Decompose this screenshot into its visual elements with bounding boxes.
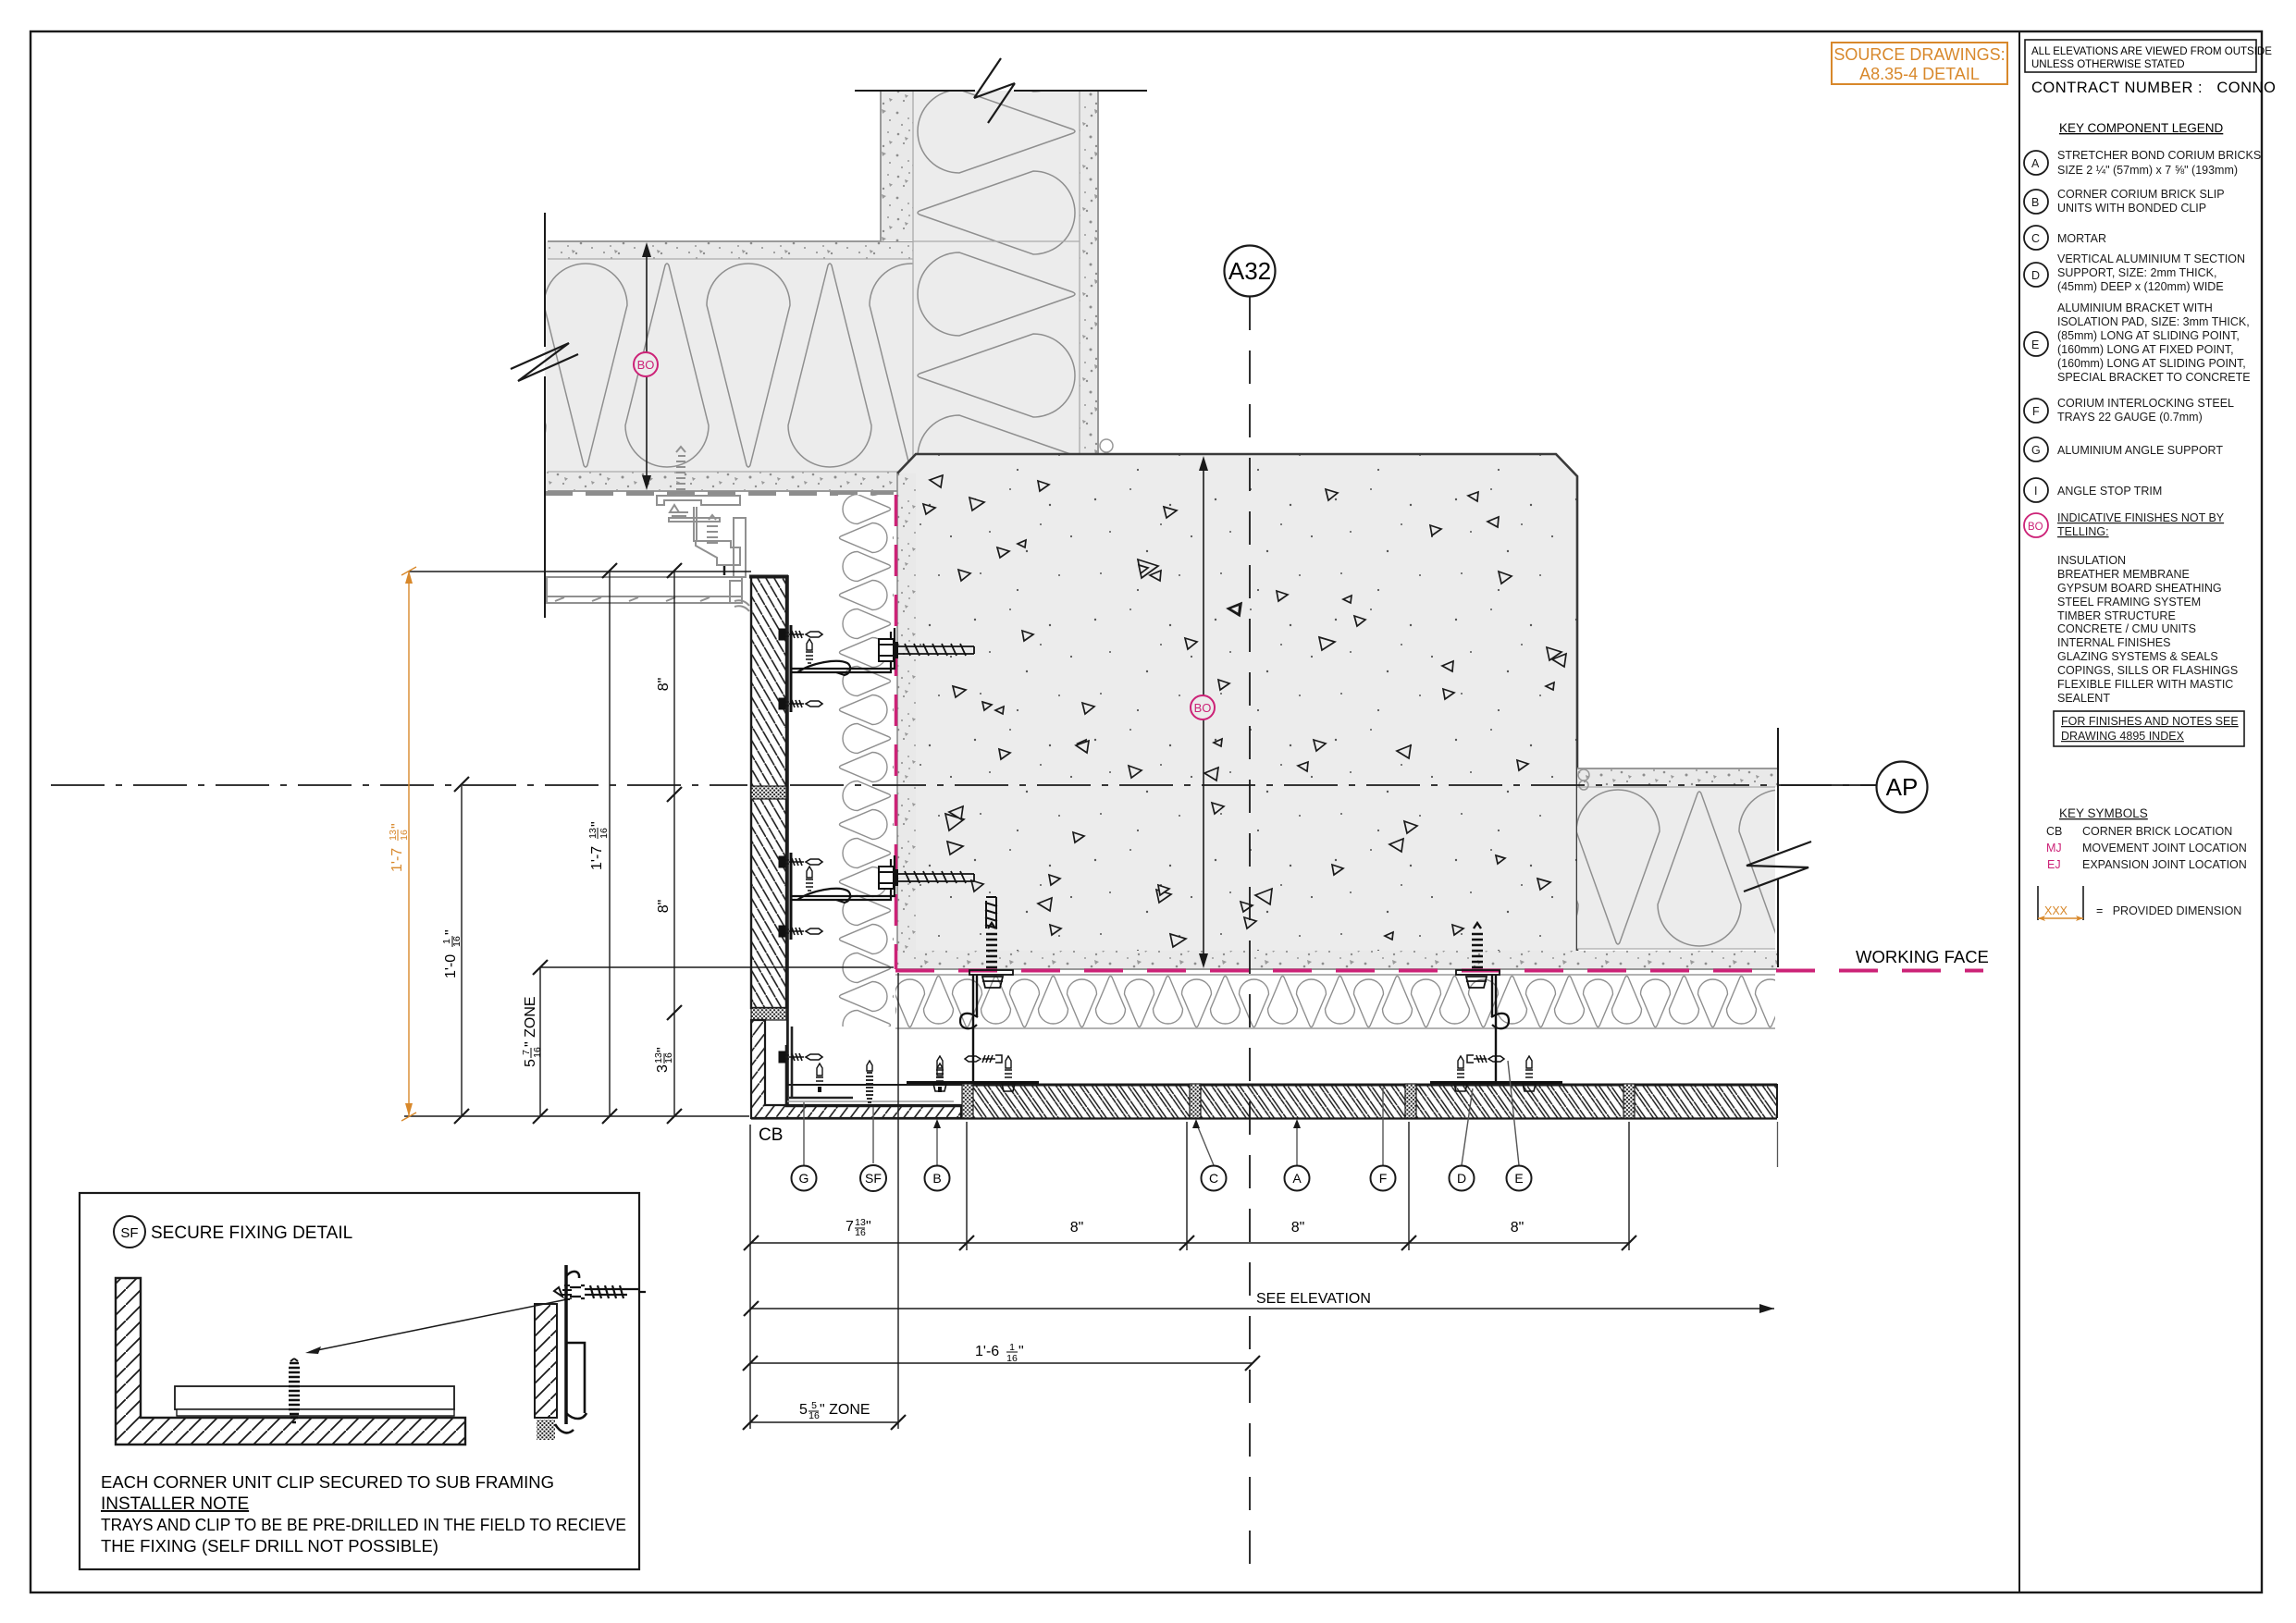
svg-text:(85mm) LONG AT SLIDING POINT,: (85mm) LONG AT SLIDING POINT,: [2057, 329, 2240, 342]
svg-text:8": 8": [1291, 1220, 1305, 1236]
svg-text:D: D: [1457, 1171, 1466, 1186]
svg-text:TRAYS 22 GAUGE (0.7mm): TRAYS 22 GAUGE (0.7mm): [2057, 411, 2203, 424]
svg-text:": ": [1018, 1344, 1024, 1359]
svg-text:8": 8": [1070, 1220, 1084, 1236]
svg-text:16: 16: [1006, 1353, 1018, 1364]
svg-text:CB: CB: [2046, 825, 2062, 838]
svg-text:STRETCHER BOND CORIUM BRICKS: STRETCHER BOND CORIUM BRICKS: [2057, 149, 2261, 162]
svg-text:SF: SF: [865, 1171, 882, 1186]
svg-text:": ": [589, 821, 605, 827]
svg-text:CONTRACT NUMBER : CONNO: CONTRACT NUMBER : CONNO: [2031, 80, 2276, 96]
svg-text:INTERNAL FINISHES: INTERNAL FINISHES: [2057, 636, 2170, 649]
svg-text:SOURCE DRAWINGS:: SOURCE DRAWINGS:: [1833, 45, 2005, 64]
svg-text:13: 13: [587, 828, 599, 839]
svg-text:B: B: [2031, 196, 2039, 209]
svg-text:1: 1: [1009, 1342, 1015, 1353]
svg-text:SECURE FIXING DETAIL: SECURE FIXING DETAIL: [151, 1223, 352, 1243]
svg-text:8": 8": [656, 678, 672, 692]
svg-text:1'-7: 1'-7: [389, 848, 405, 872]
svg-text:C: C: [1209, 1171, 1218, 1186]
svg-text:BREATHER MEMBRANE: BREATHER MEMBRANE: [2057, 568, 2190, 581]
svg-text:16: 16: [532, 1047, 543, 1058]
svg-text:KEY SYMBOLS: KEY SYMBOLS: [2059, 806, 2148, 820]
svg-text:13: 13: [388, 830, 399, 841]
svg-text:A8.35-4 DETAIL: A8.35-4 DETAIL: [1859, 65, 1980, 83]
svg-text:F: F: [1379, 1171, 1388, 1186]
svg-text:CB: CB: [759, 1125, 783, 1145]
svg-text:16: 16: [663, 1052, 674, 1064]
svg-text:MJ: MJ: [2046, 842, 2062, 855]
svg-text:8": 8": [656, 900, 672, 914]
svg-text:CONCRETE / CMU UNITS: CONCRETE / CMU UNITS: [2057, 622, 2196, 635]
svg-text:ALL ELEVATIONS ARE VIEWED FROM: ALL ELEVATIONS ARE VIEWED FROM OUTSIDE: [2031, 46, 2272, 57]
svg-text:THE FIXING (SELF DRILL NOT POS: THE FIXING (SELF DRILL NOT POSSIBLE): [101, 1536, 438, 1555]
svg-text:(160mm) LONG AT FIXED POINT,: (160mm) LONG AT FIXED POINT,: [2057, 343, 2234, 356]
svg-text:A32: A32: [1228, 257, 1271, 285]
svg-text:MOVEMENT JOINT LOCATION: MOVEMENT JOINT LOCATION: [2082, 842, 2247, 855]
svg-text:SEALENT: SEALENT: [2057, 692, 2110, 705]
svg-text:EJ: EJ: [2047, 858, 2061, 871]
svg-text:DRAWING 4895 INDEX: DRAWING 4895 INDEX: [2061, 730, 2185, 743]
svg-text:INDICATIVE FINISHES NOT BY: INDICATIVE FINISHES NOT BY: [2057, 511, 2225, 524]
svg-text:VERTICAL ALUMINIUM T SECTION: VERTICAL ALUMINIUM T SECTION: [2057, 252, 2245, 265]
svg-text:GLAZING SYSTEMS & SEALS: GLAZING SYSTEMS & SEALS: [2057, 650, 2218, 663]
svg-text:A: A: [1292, 1171, 1302, 1186]
svg-text:EACH CORNER UNIT CLIP SECURED: EACH CORNER UNIT CLIP SECURED TO SUB FRA…: [101, 1472, 554, 1492]
svg-text:B: B: [932, 1171, 941, 1186]
svg-text:AP: AP: [1886, 773, 1919, 801]
svg-text:16: 16: [599, 828, 610, 839]
svg-text:ISOLATION PAD, SIZE: 3mm THICK: ISOLATION PAD, SIZE: 3mm THICK,: [2057, 315, 2250, 328]
svg-text:": ": [389, 823, 405, 829]
svg-text:5: 5: [799, 1402, 808, 1418]
svg-text:16: 16: [855, 1227, 866, 1238]
svg-text:E: E: [2031, 338, 2039, 351]
svg-text:SPECIAL BRACKET TO CONCRETE: SPECIAL BRACKET TO CONCRETE: [2057, 371, 2251, 384]
svg-text:SIZE 2 ¼" (57mm) x 7 ⅝" (193mm: SIZE 2 ¼" (57mm) x 7 ⅝" (193mm): [2057, 164, 2238, 177]
svg-text:WORKING FACE: WORKING FACE: [1856, 947, 1989, 966]
svg-text:STEEL FRAMING SYSTEM: STEEL FRAMING SYSTEM: [2057, 596, 2201, 609]
svg-text:UNITS WITH BONDED CLIP: UNITS WITH BONDED CLIP: [2057, 202, 2206, 215]
svg-text:1'-0: 1'-0: [443, 954, 459, 978]
svg-text:" ZONE: " ZONE: [820, 1402, 870, 1418]
svg-text:7: 7: [846, 1219, 854, 1235]
svg-text:16: 16: [451, 936, 463, 947]
svg-text:I: I: [2034, 485, 2037, 498]
svg-text:A: A: [2031, 157, 2040, 170]
svg-text:C: C: [2031, 232, 2040, 245]
svg-text:D: D: [2031, 269, 2040, 282]
svg-text:CORIUM INTERLOCKING STEEL: CORIUM INTERLOCKING STEEL: [2057, 397, 2234, 410]
svg-text:UNLESS OTHERWISE STATED: UNLESS OTHERWISE STATED: [2031, 59, 2185, 70]
svg-text:SUPPORT, SIZE: 2mm THICK,: SUPPORT, SIZE: 2mm THICK,: [2057, 266, 2217, 279]
svg-text:KEY COMPONENT LEGEND: KEY COMPONENT LEGEND: [2059, 121, 2224, 135]
svg-text:BO: BO: [637, 358, 655, 372]
svg-text:(45mm) DEEP x (120mm) WIDE: (45mm) DEEP x (120mm) WIDE: [2057, 280, 2224, 293]
svg-text:G: G: [799, 1171, 809, 1186]
svg-text:BO: BO: [2028, 522, 2043, 533]
svg-text:= PROVIDED DIMENSION: = PROVIDED DIMENSION: [2096, 904, 2241, 917]
svg-text:GYPSUM BOARD SHEATHING: GYPSUM BOARD SHEATHING: [2057, 582, 2222, 595]
svg-text:1'-6: 1'-6: [975, 1344, 999, 1359]
svg-text:FLEXIBLE FILLER WITH MASTIC: FLEXIBLE FILLER WITH MASTIC: [2057, 678, 2233, 691]
svg-text:INSULATION: INSULATION: [2057, 554, 2126, 567]
svg-text:E: E: [1514, 1171, 1523, 1186]
svg-text:TIMBER STRUCTURE: TIMBER STRUCTURE: [2057, 609, 2176, 622]
svg-text:CORNER BRICK LOCATION: CORNER BRICK LOCATION: [2082, 825, 2232, 838]
svg-text:16: 16: [399, 830, 410, 841]
svg-text:" ZONE: " ZONE: [523, 996, 538, 1047]
svg-text:ALUMINIUM ANGLE SUPPORT: ALUMINIUM ANGLE SUPPORT: [2057, 444, 2223, 457]
svg-text:XXX: XXX: [2044, 904, 2068, 917]
svg-text:8": 8": [1511, 1220, 1524, 1236]
svg-text:5: 5: [523, 1059, 538, 1067]
svg-text:SEE ELEVATION: SEE ELEVATION: [1256, 1291, 1371, 1307]
svg-text:": ": [443, 929, 459, 935]
svg-text:EXPANSION JOINT LOCATION: EXPANSION JOINT LOCATION: [2082, 858, 2247, 871]
svg-text:G: G: [2031, 444, 2041, 457]
svg-text:3: 3: [655, 1064, 671, 1073]
svg-text:": ": [655, 1047, 671, 1052]
svg-text:INSTALLER NOTE: INSTALLER NOTE: [101, 1494, 249, 1514]
svg-text:SF: SF: [120, 1225, 138, 1241]
svg-text:7: 7: [521, 1050, 532, 1055]
svg-text:CORNER CORIUM BRICK SLIP: CORNER CORIUM BRICK SLIP: [2057, 188, 2225, 201]
svg-text:FOR FINISHES AND NOTES SEE: FOR FINISHES AND NOTES SEE: [2061, 715, 2239, 728]
svg-text:": ": [866, 1219, 871, 1235]
svg-text:TELLING:: TELLING:: [2057, 525, 2109, 538]
svg-text:TRAYS AND CLIP TO BE BE PRE-DR: TRAYS AND CLIP TO BE BE PRE-DRILLED IN T…: [101, 1515, 626, 1534]
svg-text:MORTAR: MORTAR: [2057, 232, 2106, 245]
svg-text:(160mm) LONG AT SLIDING POINT,: (160mm) LONG AT SLIDING POINT,: [2057, 357, 2246, 370]
svg-text:BO: BO: [1194, 701, 1212, 715]
svg-text:ANGLE STOP TRIM: ANGLE STOP TRIM: [2057, 485, 2162, 498]
svg-text:COPINGS, SILLS OR FLASHINGS: COPINGS, SILLS OR FLASHINGS: [2057, 664, 2238, 677]
svg-text:16: 16: [809, 1410, 820, 1421]
svg-text:1'-7: 1'-7: [589, 846, 605, 870]
svg-text:ALUMINIUM BRACKET WITH: ALUMINIUM BRACKET WITH: [2057, 301, 2213, 314]
svg-text:F: F: [2032, 405, 2040, 418]
